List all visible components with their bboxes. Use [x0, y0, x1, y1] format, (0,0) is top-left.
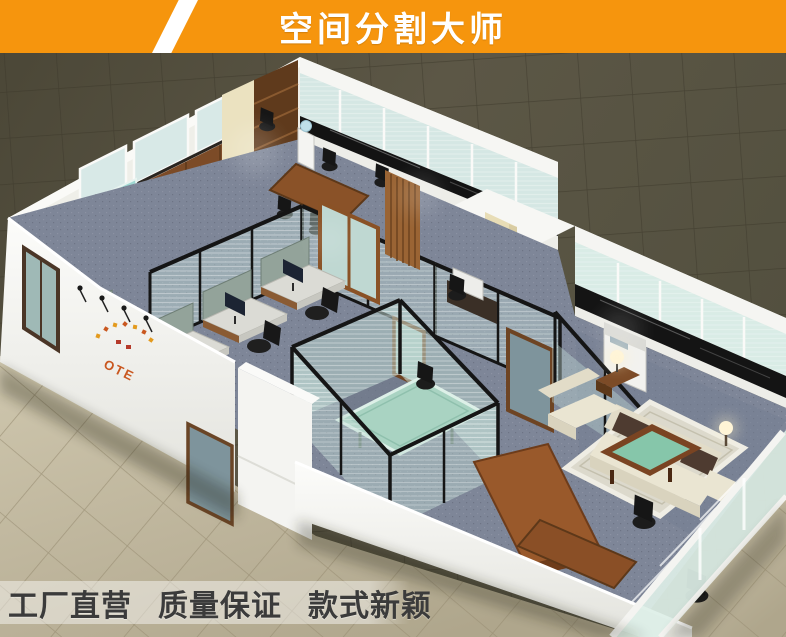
- promo-image: OTE 空间分割大师 工厂直营 质量保证 款式新颖: [0, 0, 786, 637]
- banner-stripe: [152, 0, 198, 53]
- slogan-new-styles: 款式新颖: [308, 581, 432, 625]
- slogan-quality: 质量保证: [158, 581, 282, 625]
- office-render: OTE: [0, 0, 786, 637]
- executive-door: [508, 330, 552, 430]
- banner: 空间分割大师: [0, 0, 786, 53]
- slogan-factory-direct: 工厂直营: [8, 581, 132, 625]
- banner-title: 空间分割大师: [279, 2, 507, 51]
- slogan-band: 工厂直营 质量保证 款式新颖: [0, 581, 410, 624]
- water-cooler: [298, 121, 314, 171]
